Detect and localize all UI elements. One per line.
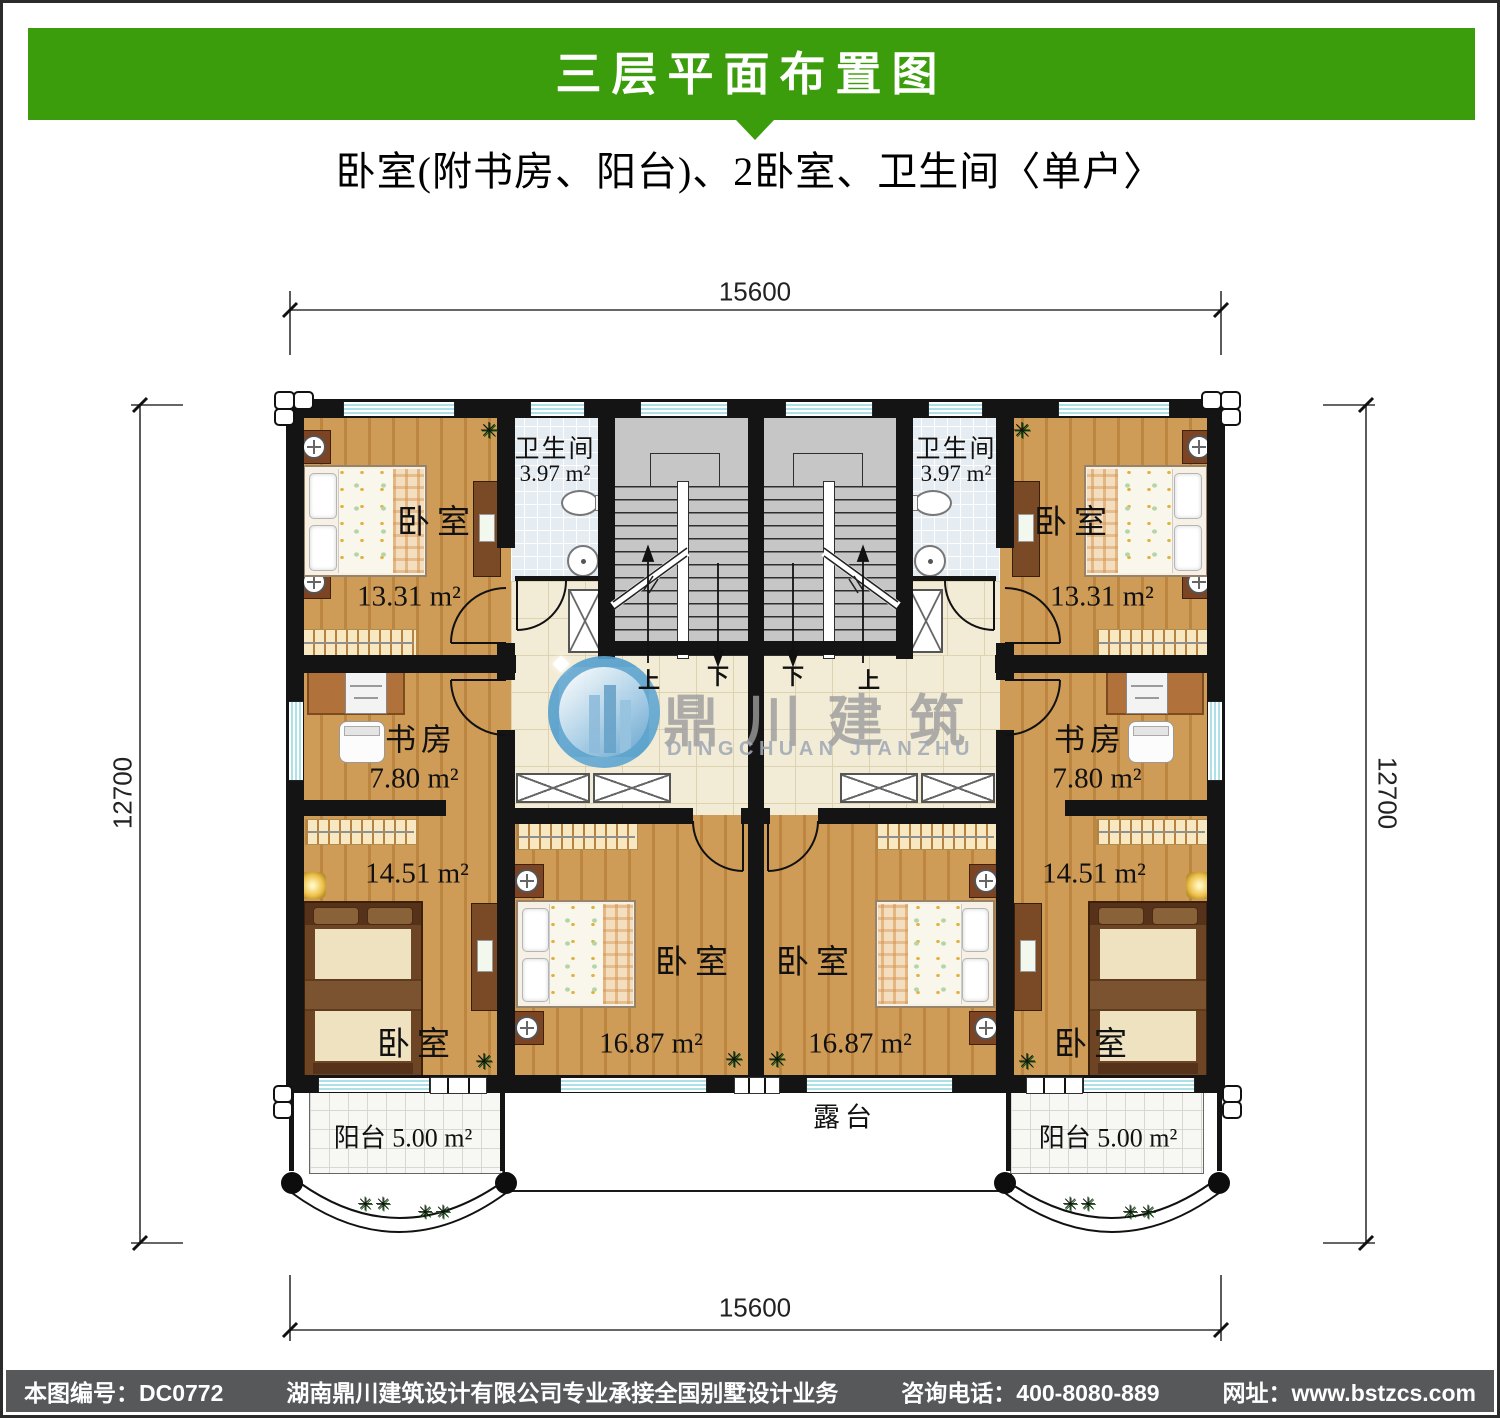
balcony-plants-icon: ✳✳ <box>1062 1196 1098 1215</box>
website-line: 网址：www.bstzcs.com <box>1222 1374 1475 1408</box>
room-label-balcony-right: 阳台 5.00 m² <box>1039 1118 1178 1155</box>
room-label-bathroom-left: 卫生间 <box>514 429 595 465</box>
stair-down-label: 下 <box>707 659 729 691</box>
room-area-bathroom-left: 3.97 m² <box>520 461 591 487</box>
dimension-left: 12700 <box>108 757 139 829</box>
stair-up-label: 上 <box>638 663 660 695</box>
room-label-terrace: 露台 <box>813 1096 877 1135</box>
dimension-lines <box>131 291 1375 1341</box>
plant-icon: ✳ <box>1018 1051 1036 1073</box>
dimension-top: 15600 <box>719 277 791 308</box>
drawing-number: 本图编号：DC0772 <box>24 1374 223 1408</box>
floor-plan-page: 三层平面布置图 卧室(附书房、阳台)、2卧室、卫生间〈单户〉 <box>0 0 1500 1418</box>
room-area-bedroom-top-right: 13.31 m² <box>1050 581 1154 614</box>
balcony-plants-icon: ✳✳ <box>1122 1204 1158 1223</box>
plant-icon: ✳ <box>768 1049 786 1071</box>
stair-up-label: 上 <box>858 663 880 695</box>
room-label-balcony-left: 阳台 5.00 m² <box>334 1118 473 1155</box>
company-line: 湖南鼎川建筑设计有限公司专业承接全国别墅设计业务 <box>286 1374 838 1408</box>
banner-pointer-triangle <box>736 120 774 140</box>
balcony-left-name: 阳台 <box>334 1124 386 1153</box>
plant-icon: ✳ <box>1013 420 1031 442</box>
room-area-bedroom-mid-left: 14.51 m² <box>365 858 469 891</box>
plant-icon: ✳ <box>725 1049 743 1071</box>
page-title: 三层平面布置图 <box>28 28 1475 120</box>
balcony-plants-icon: ✳✳ <box>417 1204 453 1223</box>
room-area-bedroom-center-right: 16.87 m² <box>808 1028 912 1061</box>
page-subtitle: 卧室(附书房、阳台)、2卧室、卫生间〈单户〉 <box>3 139 1497 197</box>
room-area-bedroom-center-left: 16.87 m² <box>599 1028 703 1061</box>
stair-down-label: 下 <box>782 659 804 691</box>
room-area-study-left: 7.80 m² <box>369 763 458 796</box>
room-area-bedroom-mid-right: 14.51 m² <box>1042 858 1146 891</box>
stair-break-lines <box>613 548 898 610</box>
room-area-bathroom-right: 3.97 m² <box>921 461 992 487</box>
balcony-right-name: 阳台 <box>1039 1124 1091 1153</box>
room-label-bedroom-top-right: 卧室 <box>1034 495 1114 543</box>
dimension-bottom: 15600 <box>719 1293 791 1324</box>
title-banner: 三层平面布置图 <box>28 28 1475 120</box>
room-label-bedroom-mid-right: 卧室 <box>1054 1017 1134 1065</box>
footer-bar: 本图编号：DC0772 湖南鼎川建筑设计有限公司专业承接全国别墅设计业务 咨询电… <box>6 1370 1494 1412</box>
room-label-bedroom-center-right: 卧室 <box>776 935 856 983</box>
room-label-study-right: 书房 <box>1054 715 1126 760</box>
dimension-ticks <box>133 303 1373 1337</box>
room-label-bathroom-right: 卫生间 <box>915 429 996 465</box>
plant-icon: ✳ <box>480 420 498 442</box>
dimension-right: 12700 <box>1372 757 1403 829</box>
room-area-study-right: 7.80 m² <box>1052 763 1141 796</box>
phone-line: 咨询电话：400-8080-889 <box>901 1374 1159 1408</box>
plant-icon: ✳ <box>475 1051 493 1073</box>
room-label-bedroom-mid-left: 卧室 <box>377 1017 457 1065</box>
balcony-left-area: 5.00 m² <box>392 1124 472 1153</box>
balcony-plants-icon: ✳✳ <box>357 1196 393 1215</box>
room-label-study-left: 书房 <box>385 715 457 760</box>
room-label-bedroom-center-left: 卧室 <box>655 935 735 983</box>
room-label-bedroom-top-left: 卧室 <box>397 495 477 543</box>
room-area-bedroom-top-left: 13.31 m² <box>357 581 461 614</box>
watermark-company-en: DINGCHUAN JIANZHU <box>667 738 975 761</box>
balcony-right-area: 5.00 m² <box>1097 1124 1177 1153</box>
